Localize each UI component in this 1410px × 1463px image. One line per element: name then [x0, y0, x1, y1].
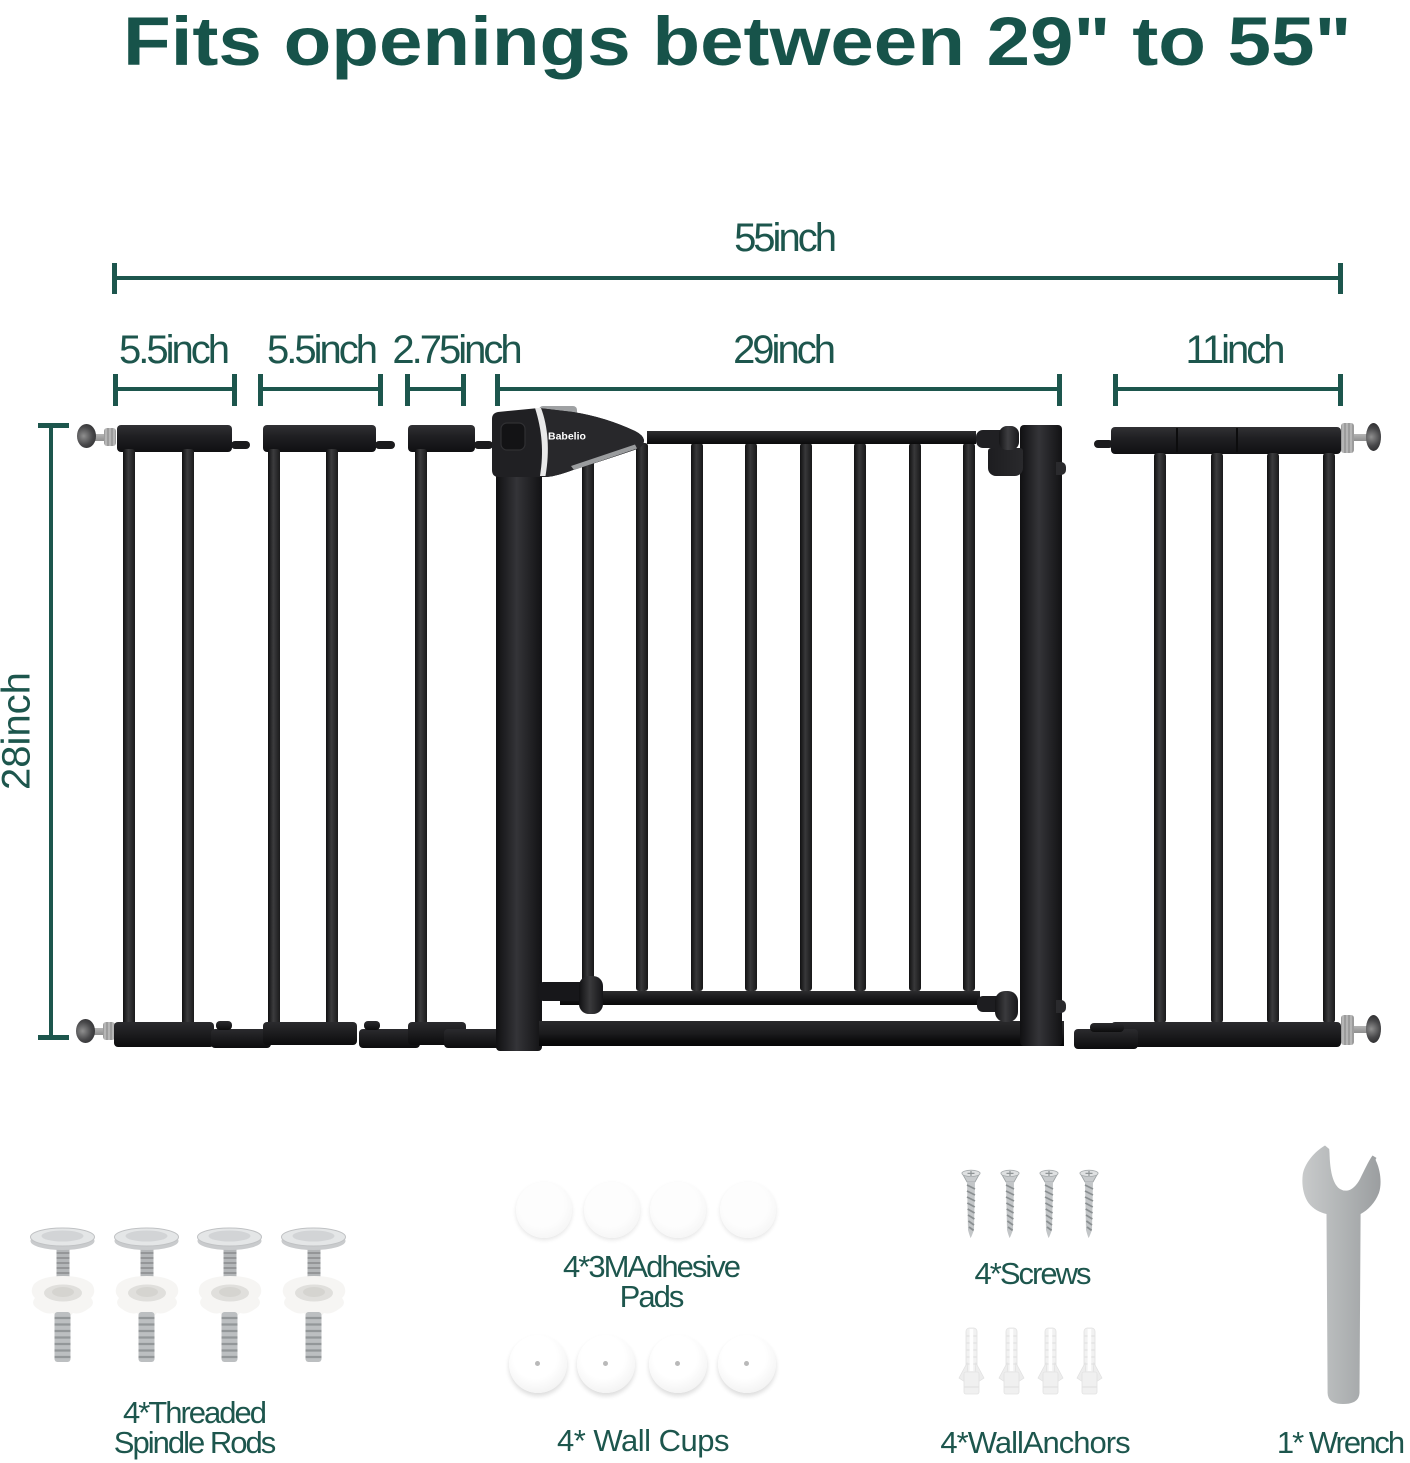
svg-text:Babelio: Babelio: [548, 431, 586, 443]
